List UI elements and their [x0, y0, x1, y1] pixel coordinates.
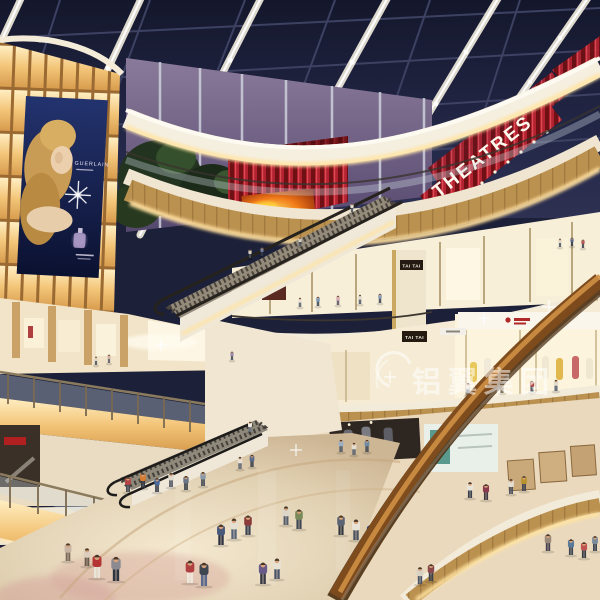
- tai-tai-sign-upper: TAI TAI: [400, 260, 423, 270]
- tai-tai-sign-lower: TAI TAI: [402, 331, 427, 342]
- svg-text:TAI TAI: TAI TAI: [405, 335, 424, 341]
- perfume-ad-poster: GUERLAIN: [17, 96, 113, 278]
- svg-text:TAI TAI: TAI TAI: [402, 264, 420, 269]
- watermark-text: 铝翼集团: [412, 366, 556, 399]
- mall-atrium-rendering: THEATRES TAI TAI: [0, 0, 600, 600]
- side-store-red-sign: [4, 437, 26, 445]
- scene-canvas: THEATRES TAI TAI: [0, 0, 600, 600]
